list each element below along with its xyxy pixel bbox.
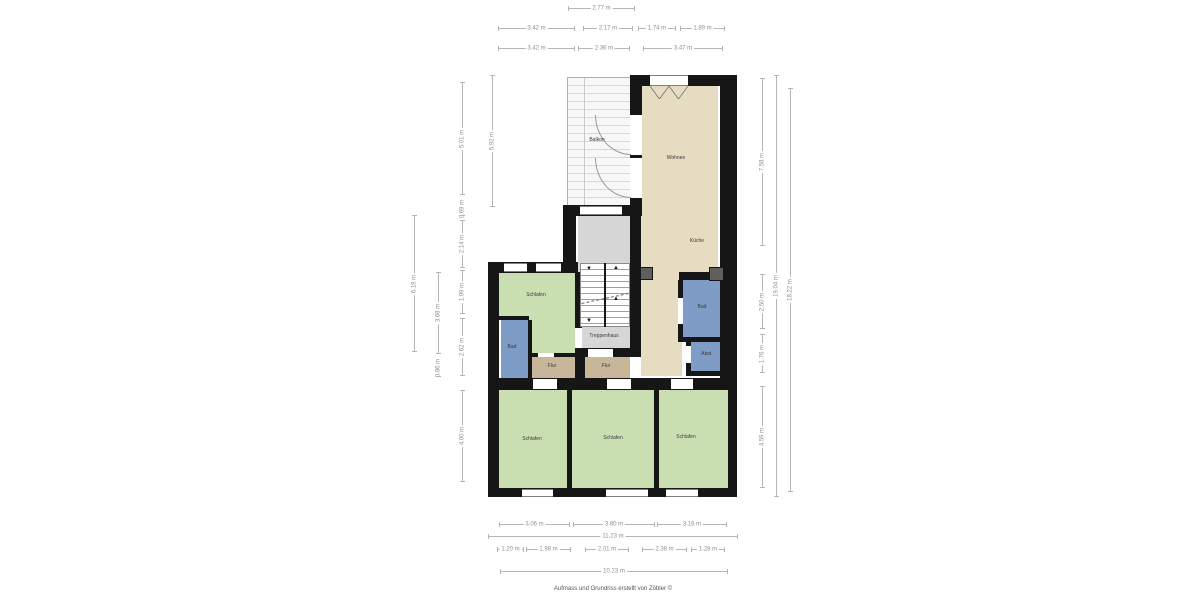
wall-stair-right	[630, 205, 641, 357]
dimension-line: 6.18 m	[414, 215, 415, 352]
dimension-line: 1.99 m	[462, 270, 463, 314]
stair-divider	[604, 263, 606, 327]
room-label-schlafen-2: Schlafen	[603, 435, 622, 441]
dimension-line: 2.01 m	[585, 549, 629, 550]
door-balcony-2	[630, 158, 642, 198]
dimension-label: 2.01 m	[596, 546, 618, 553]
casement-window-icon	[650, 86, 688, 99]
stair-arrow-down-icon: ▼	[586, 318, 592, 324]
stair-arrow-up-icon: ▲	[613, 296, 619, 302]
room-label-abstellraum: Abst.	[701, 351, 712, 357]
floor-plan-canvas: ▼ ▼ ▲ ▲ BalkonWohnenKücheBadAbst.Schlafe…	[0, 0, 1200, 600]
dimension-line: 3.42 m	[498, 28, 575, 29]
dimension-line: 5.92 m	[492, 75, 493, 207]
dimension-label: 5.01 m	[459, 127, 466, 149]
dimension-label: 3.68 m	[435, 302, 442, 324]
dimension-label: 3.47 m	[672, 45, 694, 52]
dimension-label: 3.42 m	[525, 25, 547, 32]
dimension-label: 1.89 m	[691, 25, 713, 32]
dimension-label: 3.16 m	[681, 521, 703, 528]
dimension-line: 7.58 m	[762, 78, 763, 246]
dimension-line: 2.62 m	[462, 318, 463, 376]
window-stair-landing	[580, 206, 622, 215]
door-hall-kitchen	[630, 357, 641, 378]
room-label-flur-links: Flur	[548, 363, 557, 369]
dimension-line: 5.01 m	[462, 82, 463, 195]
dimension-label: 1.76 m	[759, 342, 766, 364]
dimension-label: 5.92 m	[489, 130, 496, 152]
dimension-label: 2.77 m	[590, 5, 612, 12]
dimension-line: 1.98 m	[526, 549, 571, 550]
dimension-line: 3.06 m	[499, 524, 570, 525]
dimension-label: 2.38 m	[653, 546, 675, 553]
dimension-label: 1.99 m	[459, 281, 466, 303]
wall-storage-bottom	[686, 371, 724, 376]
room-label-bad-links: Bad	[508, 344, 517, 350]
dimension-label: 18.22 m	[787, 277, 794, 303]
room-label-schlafen-mitte: Schlafen	[526, 292, 545, 298]
dimension-label: 7.58 m	[759, 151, 766, 173]
door-apartment-entry	[575, 328, 582, 348]
dimension-line: 1.74 m	[638, 28, 676, 29]
dimension-line: 4.59 m	[762, 386, 763, 488]
dimension-line: 1.20 m	[497, 549, 524, 550]
door-bath-right	[678, 298, 683, 324]
dimension-line: 2.14 m	[462, 220, 463, 268]
dimension-label: 1.20 m	[499, 546, 521, 553]
dimension-label: 1.98 m	[537, 546, 559, 553]
wall-widen-top	[488, 262, 578, 273]
wall-right-lower	[728, 381, 737, 488]
wall-bedroom-divider-2	[654, 389, 659, 488]
door-bedroom-2	[607, 379, 631, 389]
dimension-label: 2.17 m	[597, 25, 619, 32]
chimney-block-left	[640, 267, 653, 280]
dimension-line: 2.77 m	[568, 8, 635, 9]
room-label-schlafen-1: Schlafen	[522, 436, 541, 442]
room-label-balkon: Balkon	[589, 137, 604, 143]
door-storage	[686, 346, 691, 363]
wall-flur-divider	[577, 357, 585, 378]
stair-arrow-up-icon: ▲	[613, 265, 619, 271]
room-label-treppenhaus: Treppenhaus	[589, 333, 618, 339]
dimension-label: 19.04 m	[773, 273, 780, 299]
door-hall-stairwell	[588, 349, 613, 357]
dimension-line: 1.76 m	[762, 334, 763, 373]
window-bedroom-3	[666, 489, 698, 497]
dimension-label: 1.28 m	[697, 546, 719, 553]
dimension-line: 3.16 m	[657, 524, 727, 525]
dimension-line: 0.69 m	[462, 201, 463, 216]
dimension-line: 2.38 m	[642, 549, 687, 550]
dimension-line: 3.42 m	[498, 48, 575, 49]
room-label-kueche: Küche	[690, 238, 704, 244]
wall-bath-left-top	[499, 316, 529, 320]
dimension-label: 2.14 m	[459, 233, 466, 255]
credit-text: Aufmass und Grundriss erstellt von Zöble…	[554, 586, 672, 592]
dimension-label: 11.23 m	[600, 533, 625, 540]
dimension-line: 18.22 m	[790, 88, 791, 492]
dimension-line: 19.04 m	[776, 75, 777, 497]
wall-bedroom-divider-1	[567, 390, 572, 488]
room-label-wohnen: Wohnen	[667, 155, 686, 161]
door-bedroom-1	[533, 379, 557, 389]
dimension-line: 1.28 m	[691, 549, 725, 550]
dimension-label: 3.80 m	[603, 521, 625, 528]
dimension-line: 2.17 m	[583, 28, 633, 29]
room-area-schlafen-mitte-b	[532, 320, 575, 353]
dimension-label: 3.42 m	[525, 45, 547, 52]
dimension-label: 6.18 m	[411, 272, 418, 294]
dimension-line: 4.00 m	[462, 390, 463, 482]
room-label-bad-rechts: Bad	[698, 304, 707, 310]
balcony-railing-line	[584, 78, 585, 206]
dimension-line: 3.80 m	[573, 524, 655, 525]
room-label-flur-rechts: Flur	[602, 363, 611, 369]
room-label-schlafen-3: Schlafen	[676, 434, 695, 440]
window-bedroom-mid-1	[504, 263, 527, 272]
dimension-label: 2.62 m	[459, 336, 466, 358]
dimension-label: 3.06 m	[523, 521, 545, 528]
dimension-label: 0.69 m	[459, 197, 466, 219]
dimension-line: 2.36 m	[578, 48, 630, 49]
dimension-line: 0.86 m	[438, 358, 439, 377]
dimension-line: 2.50 m	[762, 274, 763, 329]
dimension-line: 1.89 m	[680, 28, 725, 29]
chimney-block-right	[709, 267, 724, 281]
window-bedroom-1	[522, 489, 553, 497]
wall-bath-left-right	[528, 320, 532, 378]
dimension-label: 2.36 m	[593, 45, 615, 52]
door-bedroom-mid	[538, 353, 554, 357]
door-bedroom-3	[671, 379, 693, 389]
window-bedroom-2	[606, 489, 648, 497]
stair-arrow-down-icon: ▼	[586, 266, 592, 272]
window-bedroom-mid-2	[536, 263, 561, 272]
window-living-top	[650, 75, 688, 86]
room-area-kueche	[641, 280, 682, 376]
dimension-line: 3.68 m	[438, 272, 439, 354]
dimension-label: 10.23 m	[601, 568, 627, 575]
dimension-label: 0.86 m	[435, 356, 442, 378]
dimension-label: 4.00 m	[459, 425, 466, 447]
door-balcony-1	[630, 115, 642, 155]
room-area-wohnen	[641, 85, 718, 280]
dimension-label: 1.74 m	[646, 25, 668, 32]
dimension-label: 2.50 m	[759, 290, 766, 312]
dimension-line: 3.47 m	[643, 48, 723, 49]
dimension-line: 10.23 m	[500, 571, 728, 572]
dimension-label: 4.59 m	[759, 426, 766, 448]
dimension-line: 11.23 m	[488, 536, 738, 537]
